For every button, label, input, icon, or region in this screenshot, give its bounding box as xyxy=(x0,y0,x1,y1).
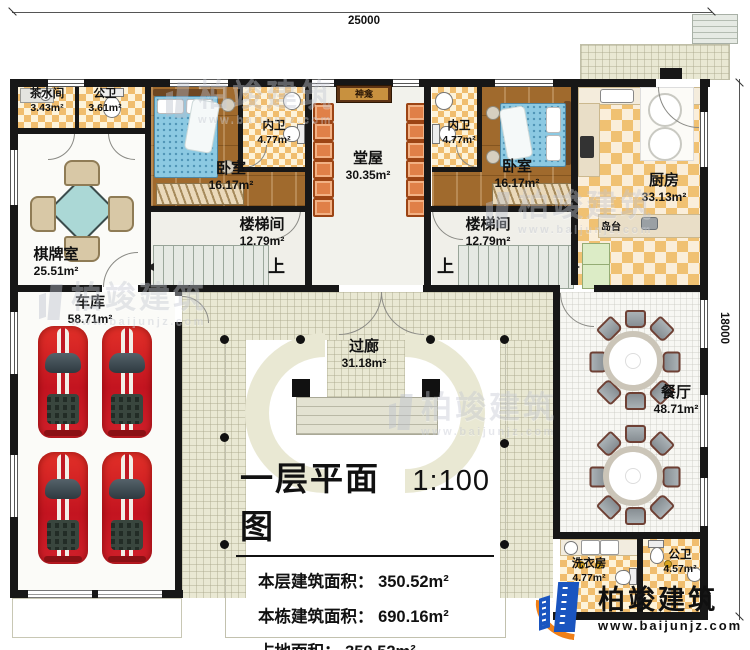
hall-chair-icon xyxy=(313,179,334,198)
room-label-bedroom-right: 卧室 16.17m² xyxy=(482,158,552,190)
dimension-width: 25000 xyxy=(330,15,398,27)
company-url: www.baijunjz.com xyxy=(598,619,742,632)
hall-chair-icon xyxy=(313,198,334,217)
outdoor-steps-top-right xyxy=(692,14,738,44)
wall xyxy=(138,285,339,292)
sink-icon xyxy=(435,92,453,110)
chair-icon xyxy=(30,196,56,232)
window xyxy=(700,300,708,348)
garage-apron xyxy=(12,598,182,638)
chair-icon xyxy=(108,196,134,232)
fridge-icon xyxy=(582,243,610,289)
stair-up-label: 上 xyxy=(268,252,285,277)
window xyxy=(700,112,708,167)
room-label-bedroom-left: 卧室 16.17m² xyxy=(196,160,266,192)
stat-building-area: 本栋建筑面积： 690.16m² xyxy=(258,603,512,627)
room-label-ensuite-right: 内卫 4.77m² xyxy=(428,120,490,146)
stat-floor-area: 本层建筑面积： 350.52m² xyxy=(258,568,512,592)
room-label-garage: 车库 58.71m² xyxy=(40,294,140,326)
room-label-public-wc-bottom: 公卫 4.57m² xyxy=(648,549,712,575)
sink-bowl-icon xyxy=(648,127,682,161)
wall xyxy=(431,206,571,212)
column-square-right xyxy=(422,379,440,397)
company-logo: 柏竣建筑 www.baijunjz.com xyxy=(536,580,741,638)
entry-steps xyxy=(296,397,438,435)
door-opening xyxy=(656,79,700,87)
washer-icon xyxy=(600,540,619,555)
stairs-right xyxy=(458,245,574,289)
wall xyxy=(305,85,312,285)
pillow-icon xyxy=(546,107,561,133)
title-block: 一层平面图 1:100 本层建筑面积： 350.52m² 本栋建筑面积： 690… xyxy=(196,452,512,650)
window xyxy=(10,455,18,517)
stat-footprint-area: 占地面积： 350.52m² xyxy=(258,638,512,650)
column-dot xyxy=(296,335,305,344)
room-label-dining: 餐厅 48.71m² xyxy=(638,384,714,416)
column-dot xyxy=(500,335,509,344)
room-label-public-wc-top: 公卫 3.61m² xyxy=(80,88,130,114)
shrine-cabinet: 神龛 xyxy=(336,85,392,103)
wall xyxy=(10,285,102,292)
faucet-icon xyxy=(641,217,658,230)
wall xyxy=(151,206,305,212)
window xyxy=(10,150,18,205)
island-label: 岛台 xyxy=(601,218,621,233)
company-logo-icon xyxy=(536,580,590,638)
stove-icon xyxy=(580,136,594,158)
hall-chair-icon xyxy=(313,103,334,122)
window xyxy=(312,79,334,87)
hall-chair-icon xyxy=(313,122,334,141)
wall xyxy=(10,128,149,134)
nightstand-icon xyxy=(221,98,235,112)
plan-scale: 1:100 xyxy=(412,465,490,498)
column-dot xyxy=(500,439,509,448)
sink-icon xyxy=(564,541,578,555)
room-label-main-hall: 堂屋 30.35m² xyxy=(330,150,406,182)
washer-icon xyxy=(581,540,600,555)
room-label-chess-room: 棋牌室 25.51m² xyxy=(20,246,92,278)
column-dot xyxy=(220,433,229,442)
dining-table xyxy=(598,441,668,511)
chair-icon xyxy=(64,160,100,186)
shrine-label: 神龛 xyxy=(340,88,388,100)
pillow-icon xyxy=(157,99,184,114)
dimension-line-top xyxy=(12,12,712,13)
dimension-line-right xyxy=(739,79,740,620)
wall xyxy=(175,285,182,590)
wall-pillar xyxy=(660,68,682,79)
wall xyxy=(571,85,578,285)
garage-door xyxy=(28,590,92,598)
wall xyxy=(424,85,431,285)
bed-headboard xyxy=(153,89,217,96)
wall xyxy=(553,285,560,532)
window xyxy=(495,79,553,87)
plan-title: 一层平面图 xyxy=(240,452,396,548)
company-name: 柏竣建筑 xyxy=(598,587,742,614)
car-icon xyxy=(38,452,88,564)
wall xyxy=(423,285,560,292)
car-icon xyxy=(38,326,88,438)
stair-up-label: 上 xyxy=(437,252,454,277)
window xyxy=(700,478,708,526)
wall xyxy=(594,285,706,292)
garage-door xyxy=(98,590,162,598)
sink-icon xyxy=(283,92,301,110)
window xyxy=(10,312,18,374)
room-label-tea-room: 茶水间 3.43m² xyxy=(14,88,80,114)
nightstand-icon xyxy=(486,106,500,120)
room-label-stairwell-left: 楼梯间 12.79m² xyxy=(222,216,302,248)
window xyxy=(48,79,84,87)
room-label-corridor: 过廊 31.18m² xyxy=(320,338,408,370)
column-dot xyxy=(220,335,229,344)
column-square-left xyxy=(292,379,310,397)
stairs-left xyxy=(153,245,269,289)
wall xyxy=(432,167,482,172)
title-row: 一层平面图 1:100 xyxy=(236,452,494,557)
room-label-kitchen: 厨房 33.13m² xyxy=(620,172,708,204)
dimension-height: 18000 xyxy=(718,304,730,352)
car-icon xyxy=(102,326,152,438)
wall xyxy=(553,532,708,539)
room-label-ensuite-left: 内卫 4.77m² xyxy=(243,120,305,146)
room-label-stairwell-right: 楼梯间 12.79m² xyxy=(448,216,528,248)
car-icon xyxy=(102,452,152,564)
kitchen-sink-icon xyxy=(600,89,634,103)
wall xyxy=(145,85,151,285)
floor-plan-canvas: 神龛 xyxy=(0,0,750,650)
column-dot xyxy=(426,335,435,344)
terrace-top-right xyxy=(580,44,730,80)
door-opening xyxy=(175,296,182,322)
window xyxy=(393,79,419,87)
window xyxy=(170,79,228,87)
